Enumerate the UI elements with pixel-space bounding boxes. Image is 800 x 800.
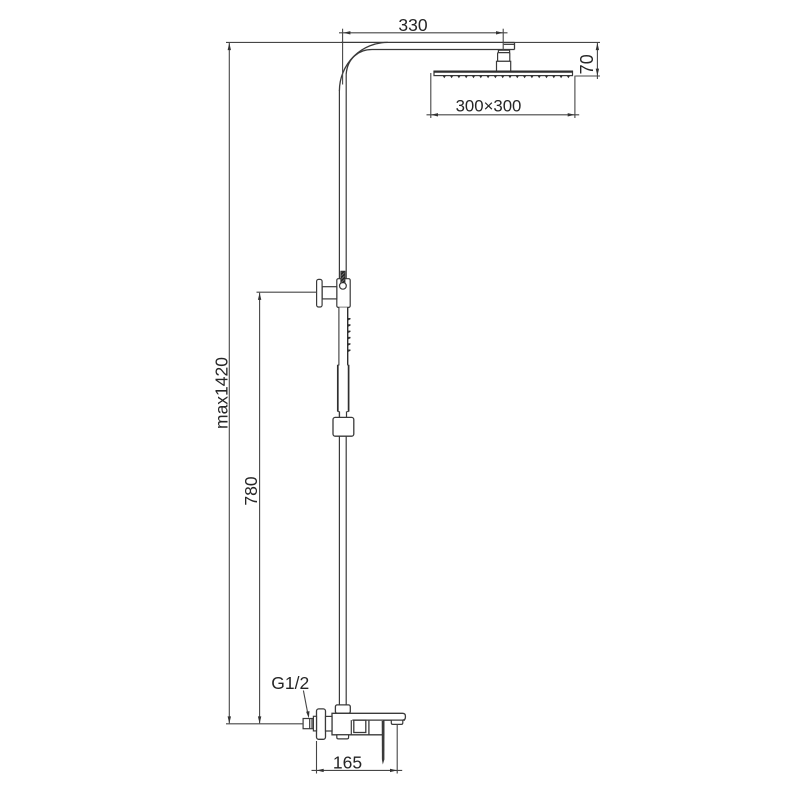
- svg-text:max1420: max1420: [212, 357, 232, 429]
- svg-text:780: 780: [241, 476, 261, 505]
- svg-text:300×300: 300×300: [456, 97, 522, 116]
- svg-text:330: 330: [398, 15, 427, 35]
- svg-text:G1/2: G1/2: [271, 673, 309, 693]
- svg-text:70: 70: [577, 54, 597, 74]
- svg-text:165: 165: [333, 752, 362, 772]
